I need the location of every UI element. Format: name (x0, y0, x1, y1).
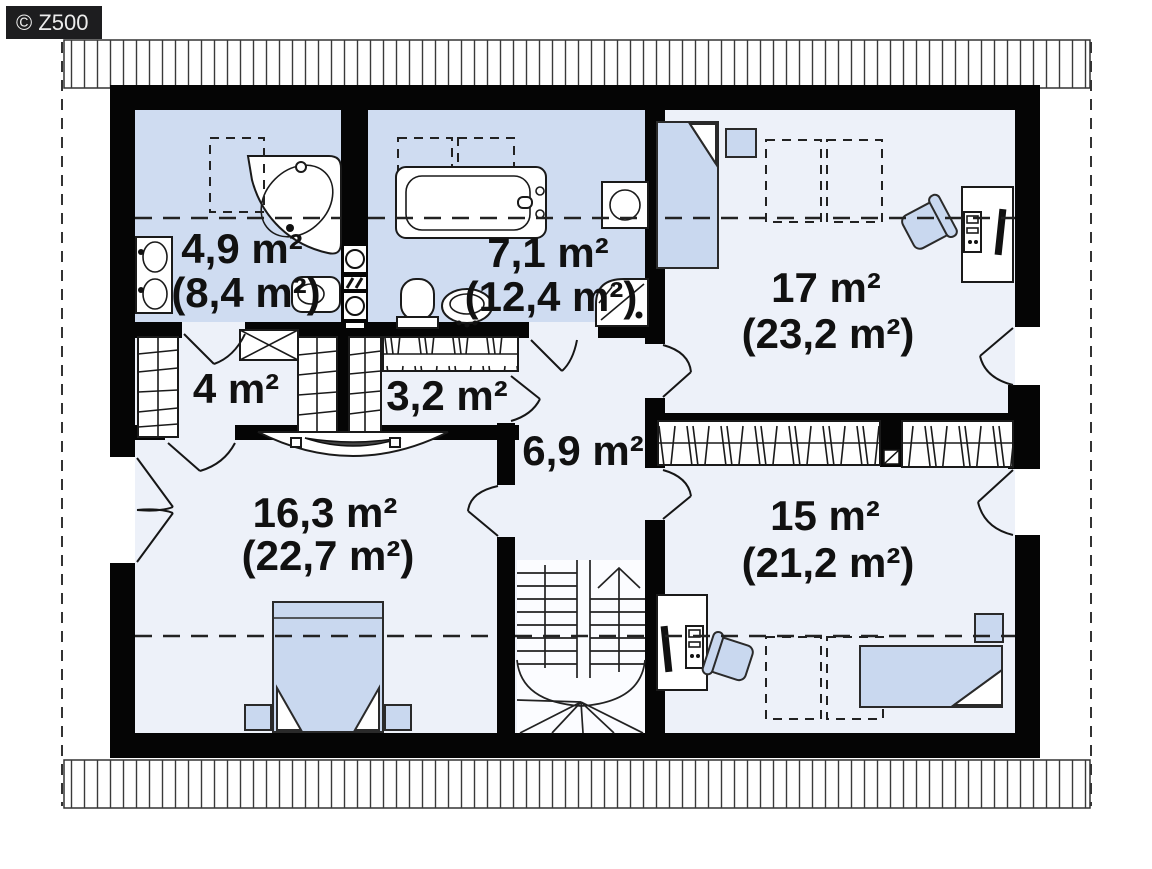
desk-icon (657, 595, 707, 690)
desk-icon (962, 187, 1013, 282)
nightstand-icon (385, 705, 411, 730)
floor-plan-page: 4,9 m² (8,4 m²) 7,1 m² (12,4 m²) 17 m² (… (0, 0, 1152, 869)
wardrobe-shelves-icon (138, 337, 178, 437)
watermark: © Z500 (6, 6, 102, 39)
clothes-rail-icon (658, 421, 880, 465)
bed-icon (657, 122, 718, 268)
wardrobe-shelves-icon (349, 337, 381, 437)
bath-large-area-label: 7,1 m² (487, 229, 608, 276)
nightstand-icon (975, 614, 1003, 642)
closet-long-area-label: 3,2 m² (386, 372, 507, 419)
double-sink-icon (136, 237, 172, 313)
clothes-rail-icon (902, 421, 1013, 467)
bath-small-total-label: (8,4 m²) (171, 269, 320, 316)
floor-plan-drawing: 4,9 m² (8,4 m²) 7,1 m² (12,4 m²) 17 m² (… (0, 0, 1152, 869)
bedroom-bottom-right-total-label: (21,2 m²) (742, 539, 915, 586)
bathtub-icon (396, 167, 546, 238)
bedroom-bottom-right-area-label: 15 m² (770, 492, 880, 539)
hallway-area-label: 6,9 m² (522, 427, 643, 474)
bedroom-left-total-label: (22,7 m²) (242, 532, 415, 579)
clothes-rail-icon (383, 337, 518, 371)
double-bed-icon (273, 602, 383, 732)
single-bed-icon (860, 646, 1002, 707)
washing-machine-icon (602, 182, 648, 228)
bedroom-top-right-total-label: (23,2 m²) (742, 310, 915, 357)
bath-small-area-label: 4,9 m² (181, 225, 302, 272)
bedroom-top-right-area-label: 17 m² (771, 264, 881, 311)
bedroom-15-wardrobes (658, 421, 1013, 467)
bedroom-left-area-label: 16,3 m² (253, 489, 398, 536)
nightstand-icon (726, 129, 756, 157)
wardrobe-shelves-icon (298, 337, 337, 437)
nightstand-icon (245, 705, 271, 730)
toilet-icon (397, 279, 438, 328)
watermark-label: © Z500 (16, 10, 88, 35)
shelf-box-icon (240, 330, 298, 360)
chimney-vent-icon (344, 246, 366, 328)
closet-small-area-label: 4 m² (193, 365, 279, 412)
bath-large-total-label: (12,4 m²) (465, 273, 638, 320)
